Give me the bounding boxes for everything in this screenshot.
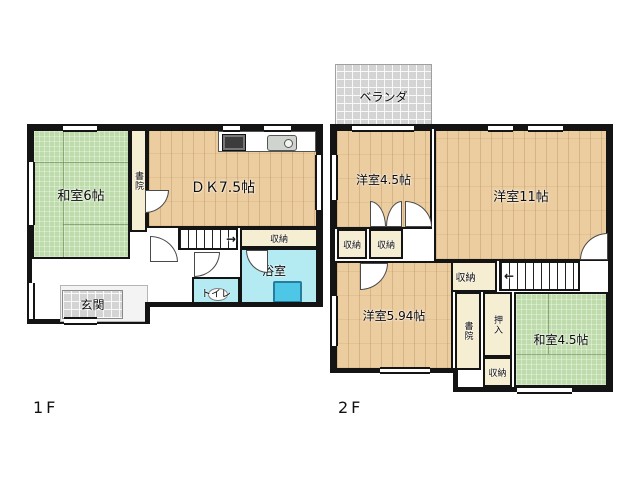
veranda-2f: ベランダ (335, 64, 432, 129)
closet-1f: 収納 (240, 228, 318, 248)
closet-bottom-2f: 収納 (483, 357, 512, 387)
room-label: 書院 (132, 171, 145, 191)
window (315, 155, 323, 210)
plan-1f: 和室6帖 書院 ＤＫ7.5帖 → 収納 浴室 トイレ (27, 124, 323, 324)
stove-icon (222, 134, 246, 151)
room-label: ＤＫ7.5帖 (191, 161, 274, 197)
room-washitsu45-2f: 和室4.5帖 (514, 292, 608, 387)
room-label: 玄関 (80, 296, 104, 313)
floor-label-1f: 1F (33, 398, 58, 417)
closet-oshiire-2f: 押入 (483, 292, 512, 357)
room-label: ベランダ (359, 88, 407, 105)
room-label: 収納 (456, 269, 476, 284)
door-arc (150, 236, 178, 262)
window (330, 296, 338, 346)
room-label: 洋室5.94帖 (363, 307, 426, 324)
window (528, 124, 563, 132)
room-label: 押入 (491, 315, 504, 335)
room-label: 洋室11帖 (493, 186, 549, 205)
room-label: 収納 (270, 232, 288, 245)
window (27, 283, 35, 319)
stairs-up-arrow-icon: → (226, 233, 236, 245)
closet-b-2f: 収納 (369, 229, 403, 259)
door-arc (194, 252, 220, 277)
sink-icon (267, 135, 297, 151)
closet-a-2f: 収納 (337, 229, 367, 259)
window (330, 155, 338, 200)
room-label: 洋室4.5帖 (356, 171, 411, 188)
window (264, 124, 291, 132)
room-label: 和室4.5帖 (533, 331, 588, 348)
room-label: 和室6帖 (57, 185, 104, 204)
window (63, 124, 97, 132)
stairs-2f: ← (499, 261, 580, 291)
faucet-icon (284, 139, 293, 148)
room-label: トイレ (201, 285, 231, 300)
tatami-line (516, 354, 606, 355)
stairs-1f: → (178, 228, 238, 250)
plan-2f: 洋室4.5帖 洋室11帖 収納 収納 収納 ← 洋室5.94帖 書院 押入 (330, 124, 613, 392)
room-label: 収納 (343, 238, 361, 251)
wall-notch-1f (145, 302, 323, 324)
entrance-door (64, 317, 97, 325)
room-label: 収納 (488, 366, 506, 379)
room-label: 書院 (462, 321, 475, 341)
tatami-line (63, 224, 128, 225)
room-washitsu6-1f: 和室6帖 (32, 129, 130, 259)
stairs-down-arrow-icon: ← (504, 270, 514, 282)
floor-label-2f: 2F (338, 398, 363, 417)
window (27, 162, 35, 225)
balcony-door (352, 124, 414, 132)
window (223, 124, 240, 132)
window (380, 367, 430, 374)
room-yoshitsu594-2f: 洋室5.94帖 (335, 261, 453, 370)
window (517, 386, 572, 394)
entrance-genkan: 玄関 (62, 290, 123, 319)
window (488, 124, 513, 132)
room-yoshitsu11-2f: 洋室11帖 (434, 129, 608, 261)
floor-plan-canvas: 和室6帖 書院 ＤＫ7.5帖 → 収納 浴室 トイレ (0, 0, 640, 480)
alcove-shoin-2f: 書院 (455, 292, 481, 370)
alcove-shoin-1f: 書院 (130, 129, 147, 232)
room-label: 収納 (377, 238, 395, 251)
tatami-line (34, 162, 128, 163)
